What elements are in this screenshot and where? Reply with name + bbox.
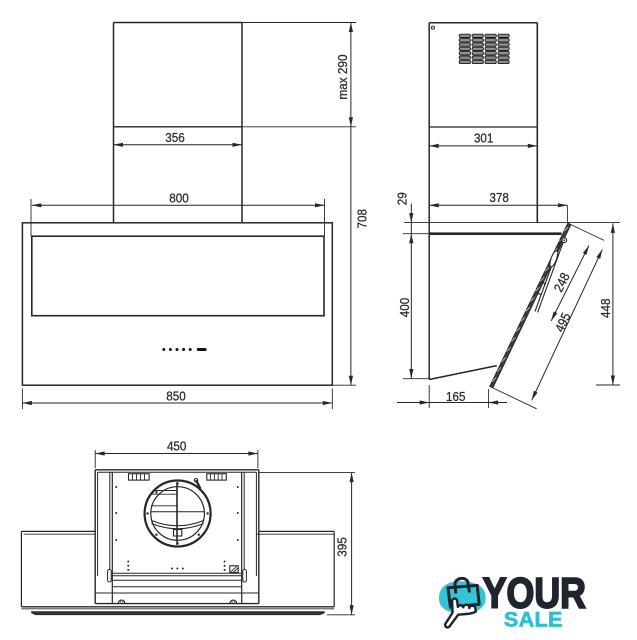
- svg-text:max 290: max 290: [335, 55, 350, 100]
- svg-text:378: 378: [489, 190, 509, 205]
- svg-text:450: 450: [167, 439, 187, 454]
- svg-text:165: 165: [446, 389, 466, 404]
- svg-text:356: 356: [165, 130, 185, 145]
- svg-text:448: 448: [598, 298, 613, 318]
- svg-text:301: 301: [474, 130, 494, 145]
- svg-text:850: 850: [166, 388, 186, 403]
- svg-text:708: 708: [354, 209, 369, 229]
- svg-text:800: 800: [169, 191, 189, 206]
- svg-text:395: 395: [334, 537, 349, 557]
- svg-text:400: 400: [397, 298, 412, 318]
- svg-text:SALE: SALE: [504, 607, 563, 632]
- svg-text:29: 29: [395, 192, 410, 205]
